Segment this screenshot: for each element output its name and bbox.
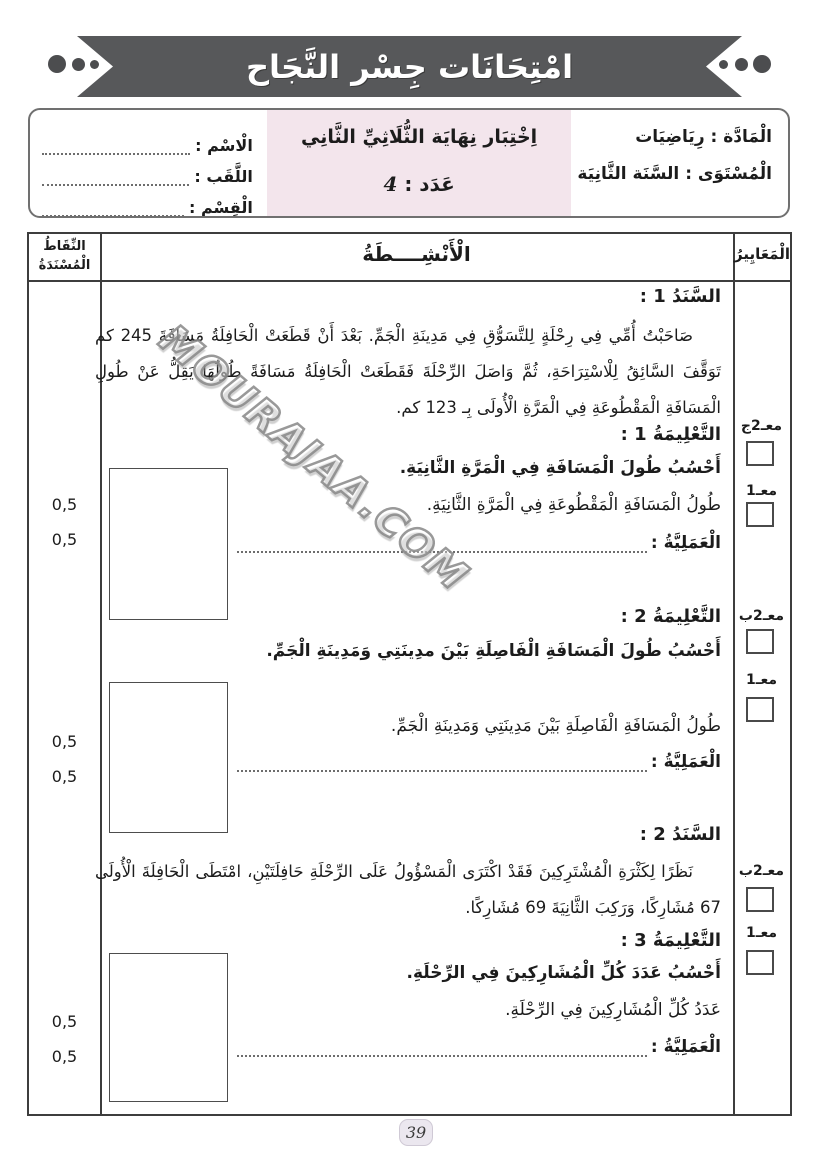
class-label: الْقِسْم : bbox=[189, 198, 253, 217]
instruction2-task: أَحْسُبُ طُولَ الْمَسَافَةِ الْفَاصِلَةِ… bbox=[266, 641, 721, 661]
points-header-line1: النِّقَاطُ bbox=[29, 238, 100, 257]
activities-column-header: الْأَنْشِــــطَةُ bbox=[100, 242, 733, 266]
criterion-checkbox[interactable] bbox=[746, 887, 774, 912]
ribbon-dot-right-large bbox=[753, 55, 771, 73]
point-value: 0,5 bbox=[29, 732, 100, 751]
point-value: 0,5 bbox=[29, 530, 100, 549]
point-value: 0,5 bbox=[29, 1012, 100, 1031]
criterion-label: معـ1 bbox=[733, 925, 790, 941]
point-value: 0,5 bbox=[29, 767, 100, 786]
instruction3-task: أَحْسُبُ عَدَدَ كُلِّ الْمُشَارِكِينَ فِ… bbox=[407, 963, 721, 983]
subject-label: الْمَادَّة : bbox=[711, 127, 772, 147]
exam-title: اِخْتِبَار نِهَايَة الثُّلَاثِيِّ الثَّا… bbox=[267, 126, 572, 148]
exam-number-label: عَدَد : bbox=[404, 172, 454, 196]
surname-label: اللَّقَب : bbox=[194, 167, 252, 186]
name-field-row: الْاسْم : bbox=[42, 124, 253, 155]
operation3-answer-line[interactable] bbox=[237, 1042, 647, 1057]
points-column-header: النِّقَاطُ الْمُسْنَدَةُ bbox=[29, 238, 100, 276]
point-value: 0,5 bbox=[29, 1047, 100, 1066]
surname-field-row: اللَّقَب : bbox=[42, 155, 253, 186]
criteria-column-header: الْمَعَايِيرُ bbox=[735, 245, 790, 263]
exam-number-row: عَدَد : 4 bbox=[267, 172, 572, 196]
criterion-label: معـ2ج bbox=[733, 418, 790, 434]
instruction2-answer-intro: طُولُ الْمَسَافَةِ الْفَاصِلَةِ بَيْنَ م… bbox=[391, 716, 721, 736]
operation2-answer-line[interactable] bbox=[237, 757, 647, 772]
title-ribbon: امْتِحَانَات جِسْر النَّجَاح bbox=[77, 36, 742, 97]
exam-info-box: الْاسْم : اللَّقَب : الْقِسْم : اِخْتِبَ… bbox=[28, 108, 790, 218]
operation2-label: الْعَمَلِيَّةُ : bbox=[651, 752, 721, 772]
ribbon-dot-right-small bbox=[719, 60, 728, 69]
operation2-workspace-box[interactable] bbox=[109, 682, 228, 833]
criterion-checkbox[interactable] bbox=[746, 502, 774, 527]
ribbon-dot-left-large bbox=[48, 55, 66, 73]
instruction1-answer-intro: طُولُ الْمَسَافَةِ الْمَقْطُوعَةِ فِي ال… bbox=[427, 495, 721, 515]
level-label: الْمُسْتَوَى : bbox=[685, 164, 772, 184]
instruction2-heading: التَّعْلِيمَةُ 2 : bbox=[621, 606, 721, 627]
operation1-row: الْعَمَلِيَّةُ : bbox=[237, 533, 721, 553]
point-value: 0,5 bbox=[29, 495, 100, 514]
page-number: 39 bbox=[406, 1123, 426, 1142]
instruction1-task: أَحْسُبُ طُولَ الْمَسَافَةِ فِي الْمَرَّ… bbox=[400, 458, 721, 478]
subject-value: رِيَاضِيَات bbox=[635, 127, 704, 147]
exam-sheet: امْتِحَانَات جِسْر النَّجَاح الْاسْم : ا… bbox=[0, 0, 819, 1161]
criterion-checkbox[interactable] bbox=[746, 629, 774, 654]
ribbon-dot-left-small bbox=[90, 60, 99, 69]
criterion-checkbox[interactable] bbox=[746, 697, 774, 722]
operation1-label: الْعَمَلِيَّةُ : bbox=[651, 533, 721, 553]
sanad1-heading: السَّنَدُ 1 : bbox=[640, 286, 721, 307]
page-number-badge: 39 bbox=[399, 1119, 433, 1146]
table-header-divider bbox=[29, 280, 790, 282]
name-label: الْاسْم : bbox=[195, 136, 253, 155]
operation3-label: الْعَمَلِيَّةُ : bbox=[651, 1037, 721, 1057]
ribbon-dot-right-medium bbox=[735, 58, 748, 71]
subject-row: الْمَادَّة : رِيَاضِيَات bbox=[577, 127, 772, 147]
operation2-row: الْعَمَلِيَّةُ : bbox=[237, 752, 721, 772]
criterion-label: معـ1 bbox=[733, 483, 790, 499]
instruction3-answer-intro: عَدَدُ كُلِّ الْمُشَارِكِينَ فِي الرِّحْ… bbox=[505, 1000, 721, 1020]
student-identity-section: الْاسْم : اللَّقَب : الْقِسْم : bbox=[30, 110, 267, 216]
surname-input-line[interactable] bbox=[42, 164, 189, 186]
ribbon-dot-left-medium bbox=[72, 58, 85, 71]
criterion-checkbox[interactable] bbox=[746, 950, 774, 975]
criterion-label: معـ1 bbox=[733, 672, 790, 688]
level-row: الْمُسْتَوَى : السَّنَة الثَّانِيَة bbox=[577, 164, 772, 184]
class-field-row: الْقِسْم : bbox=[42, 186, 253, 217]
exam-number-value: 4 bbox=[383, 172, 397, 196]
operation3-workspace-box[interactable] bbox=[109, 953, 228, 1102]
exam-series-title: امْتِحَانَات جِسْر النَّجَاح bbox=[246, 48, 573, 86]
level-value: السَّنَة الثَّانِيَة bbox=[577, 164, 679, 184]
operation3-row: الْعَمَلِيَّةُ : bbox=[237, 1037, 721, 1057]
sanad2-heading: السَّنَدُ 2 : bbox=[640, 824, 721, 845]
subject-level-section: الْمَادَّة : رِيَاضِيَات الْمُسْتَوَى : … bbox=[571, 110, 788, 216]
name-input-line[interactable] bbox=[42, 133, 190, 155]
instruction1-heading: التَّعْلِيمَةُ 1 : bbox=[621, 424, 721, 445]
instruction3-heading: التَّعْلِيمَةُ 3 : bbox=[621, 930, 721, 951]
sanad1-text: صَاحَبْتُ أُمِّي فِي رِحْلَةٍ لِلتَّسَوُ… bbox=[95, 318, 721, 426]
operation1-workspace-box[interactable] bbox=[109, 468, 228, 620]
criterion-checkbox[interactable] bbox=[746, 441, 774, 466]
activities-table: النِّقَاطُ الْمُسْنَدَةُ الْأَنْشِــــطَ… bbox=[27, 232, 792, 1116]
operation1-answer-line[interactable] bbox=[237, 538, 647, 553]
criterion-label: معـ2ب bbox=[733, 608, 790, 624]
exam-title-panel: اِخْتِبَار نِهَايَة الثُّلَاثِيِّ الثَّا… bbox=[267, 110, 572, 216]
sanad2-text: نَظَرًا لِكَثْرَةِ الْمُشْتَرِكِينَ فَقَ… bbox=[95, 854, 721, 926]
class-input-line[interactable] bbox=[42, 195, 184, 217]
points-header-line2: الْمُسْنَدَةُ bbox=[29, 257, 100, 276]
criterion-label: معـ2ب bbox=[733, 863, 790, 879]
